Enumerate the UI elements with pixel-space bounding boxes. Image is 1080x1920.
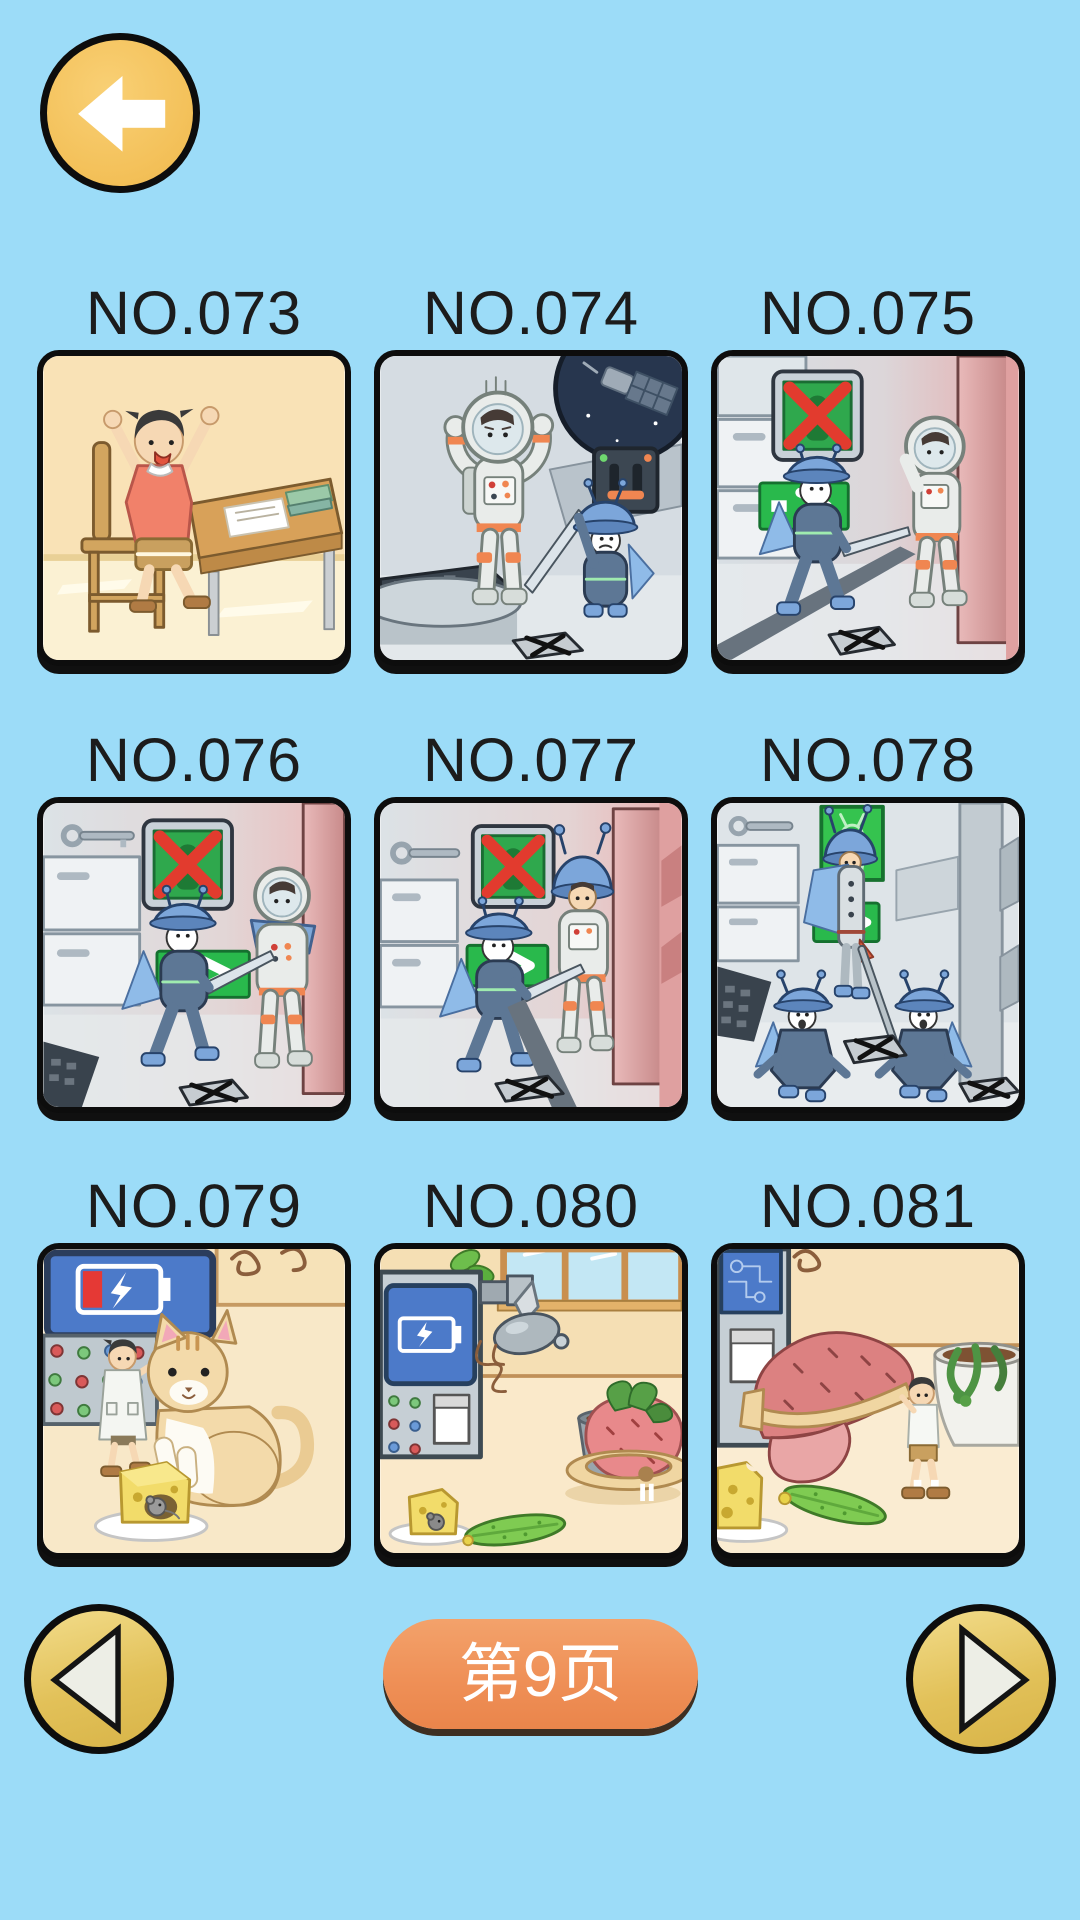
corridor-scene [43,803,345,1107]
level-select-screen: NO.073 [0,0,1080,1920]
pink-pillar [958,356,1019,660]
level-thumbnail-081[interactable] [711,1243,1025,1559]
level-cell-078: NO.078 [711,730,1025,1113]
corridor-scene [717,803,1019,1107]
floor-x-mark-2 [960,1078,1019,1101]
level-thumbnail-079[interactable] [37,1243,351,1559]
prev-page-button[interactable] [24,1604,174,1754]
level-cell-073: NO.073 [37,283,351,666]
level-cell-075: NO.075 [711,283,1025,666]
level-cell-076: NO.076 [37,730,351,1113]
page-indicator: 第9页 [383,1619,698,1729]
level-cell-079: NO.079 [37,1176,351,1559]
level-thumbnail-078[interactable] [711,797,1025,1113]
level-thumbnail-074[interactable] [374,350,688,666]
level-thumbnail-076[interactable] [37,797,351,1113]
level-thumbnail-077[interactable] [374,797,688,1113]
corridor-scene [717,356,1019,660]
back-arrow-icon [60,53,180,173]
level-title: NO.078 [711,730,1025,790]
round-table [380,578,521,644]
left-triangle-icon [31,1611,167,1747]
right-triangle-icon [913,1611,1049,1747]
level-title: NO.080 [374,1176,688,1236]
tiny-person [638,1466,653,1481]
level-title: NO.077 [374,730,688,790]
classroom-scene [43,356,345,660]
charging-machine [380,1272,480,1457]
level-title: NO.074 [374,283,688,343]
cabinets [717,845,798,960]
level-title: NO.081 [711,1176,1025,1236]
page-label: 第9页 [459,1642,623,1706]
level-title: NO.079 [37,1176,351,1236]
level-thumbnail-080[interactable] [374,1243,688,1559]
no-alien-sign [773,371,862,460]
level-title: NO.075 [711,283,1025,343]
lab-cat-scene [43,1249,345,1553]
low-battery-panel [47,1253,212,1336]
level-thumbnail-075[interactable] [711,350,1025,666]
level-thumbnail-073[interactable] [37,350,351,666]
no-alien-sign [143,820,232,909]
level-cell-074: NO.074 [374,283,688,666]
back-button[interactable] [40,33,200,193]
next-page-button[interactable] [906,1604,1056,1754]
lab-strawberry-scene [380,1249,682,1553]
corridor-scene [380,803,682,1107]
cabinets [43,857,139,1005]
space-station-scene [380,356,682,660]
pink-pillar [613,803,681,1107]
level-title: NO.073 [37,283,351,343]
level-cell-077: NO.077 [374,730,688,1113]
no-alien-sign [473,826,554,907]
level-cell-080: NO.080 [374,1176,688,1559]
level-title: NO.076 [37,730,351,790]
level-cell-081: NO.081 [711,1176,1025,1559]
sweet-potato-scene [717,1249,1019,1553]
planting-pot [935,1343,1019,1445]
